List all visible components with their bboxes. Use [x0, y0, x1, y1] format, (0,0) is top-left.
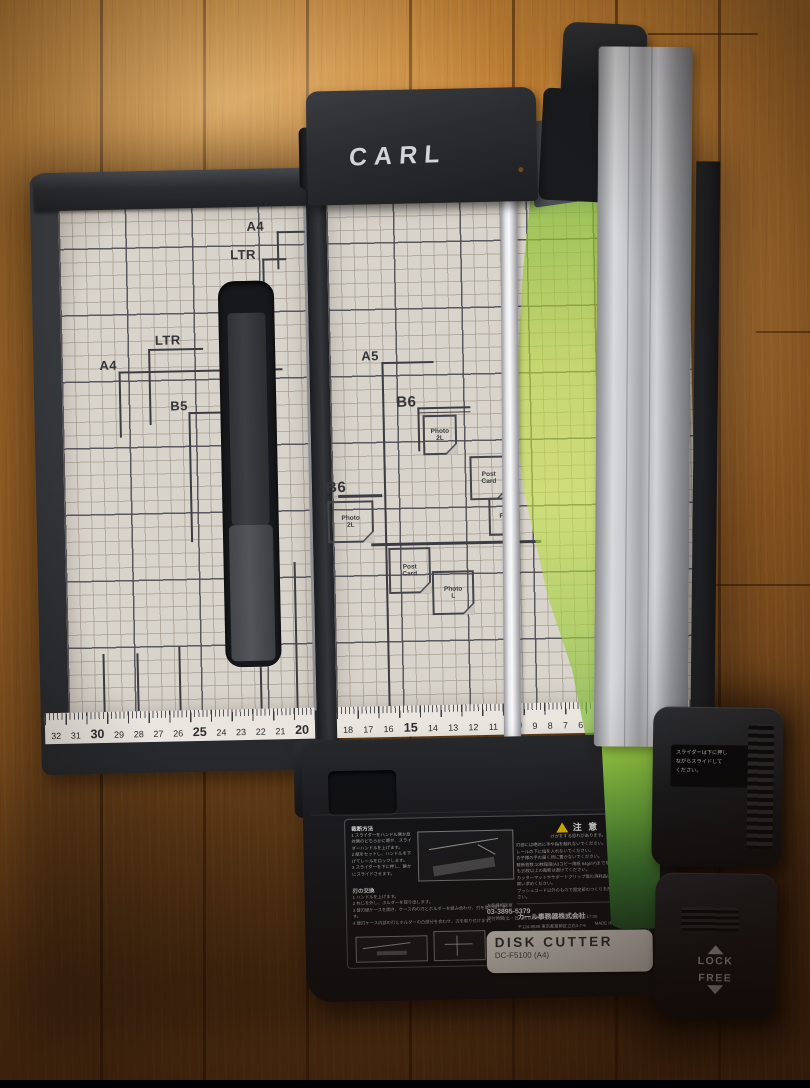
carry-handle-grip — [229, 524, 276, 661]
arrow-down-icon — [707, 985, 723, 994]
ruler-number: 14 — [428, 724, 438, 733]
post-card-label: Card — [402, 570, 417, 578]
warning-triangle-icon — [557, 822, 569, 832]
product-title: DISK CUTTER — [495, 934, 645, 951]
size-mark-a5: A5 — [361, 348, 379, 363]
size-mark-b5: B5 — [170, 398, 188, 413]
blade-diagram-1 — [355, 935, 428, 963]
lock-free-labels: LOCK FREE — [654, 944, 777, 995]
ruler-number: 20 — [295, 723, 309, 736]
fold-corner-icon — [446, 444, 457, 455]
list-item: 1 スライダーをハンドル側か反対側のどちらかに寄せ、スライダーハンドルを上げます… — [351, 832, 413, 853]
size-mark-b6-lower: B6 — [326, 479, 347, 496]
free-label: FREE — [698, 972, 732, 984]
ruler-number: 13 — [448, 724, 458, 733]
screw-dot — [518, 167, 523, 172]
cutter-rail — [594, 46, 693, 747]
ruler-number: 17 — [363, 725, 373, 734]
lock-label: LOCK — [698, 955, 734, 967]
post-card-label: Card — [481, 478, 496, 486]
base-recess — [328, 770, 397, 815]
size-mark-b6-upper: B6 — [396, 393, 417, 410]
size-mark-ltr-mid: LTR — [155, 332, 181, 348]
ruler-number: 16 — [384, 725, 394, 734]
clamp-housing: CARL — [306, 87, 538, 206]
ruler-number: 9 — [532, 722, 537, 731]
slider-caution-line: ください。 — [676, 766, 754, 776]
fold-corner-icon — [363, 531, 374, 542]
ruler-number: 8 — [548, 722, 553, 731]
ruler-number: 31 — [71, 732, 81, 741]
arrow-up-icon — [708, 945, 724, 954]
photo-2l-box-upper: Photo 2L — [423, 415, 458, 456]
ruler-number: 32 — [51, 732, 61, 741]
ruler-number: 21 — [275, 727, 285, 736]
photo-2l-box-lower: Photo 2L — [327, 500, 374, 543]
cut-method-steps: 1 スライダーをハンドル側か反対側のどちらかに寄せ、スライダーハンドルを上げます… — [351, 832, 414, 878]
lock-knob-ribs — [681, 907, 739, 932]
ruler-number: 22 — [256, 728, 266, 737]
slider-grip-ribs — [747, 724, 775, 850]
photo-2l-label: 2L — [436, 435, 444, 443]
size-mark-ltr-top: LTR — [230, 247, 256, 263]
disk-slider[interactable]: スライダーは下に押し ながらスライドして ください。 — [651, 706, 783, 868]
right-frame-edge — [690, 161, 720, 738]
photo-l-box: Photo L — [432, 570, 475, 615]
ruler-number: 6 — [578, 721, 583, 730]
ruler-number: 30 — [90, 728, 104, 741]
wing-ruler: 32313029282726252423222120 — [45, 708, 316, 745]
fold-corner-icon — [420, 582, 431, 593]
post-card-box-lower: Post Card — [388, 547, 431, 594]
warning-title: 注 意 — [573, 820, 600, 834]
product-label: DISK CUTTER DC-F5100 (A4) — [487, 929, 653, 973]
ruler-number: 27 — [153, 730, 163, 739]
photo-2l-label: 2L — [347, 522, 355, 530]
ruler-number: 7 — [563, 721, 568, 730]
ruler-number: 15 — [404, 721, 418, 734]
fold-corner-icon — [463, 603, 474, 614]
lock-knob[interactable]: LOCK FREE — [654, 872, 778, 1020]
ruler-number: 25 — [193, 725, 207, 738]
ruler-number: 28 — [134, 730, 144, 739]
photo-l-label: L — [451, 593, 455, 601]
ruler-number: 29 — [114, 731, 124, 740]
ruler-number: 12 — [468, 723, 478, 732]
ruler-number: 18 — [343, 726, 353, 735]
list-item: 3 スライダーを下に押し、静かにスライドさせます。 — [352, 864, 414, 878]
ruler-number: 11 — [489, 723, 499, 732]
size-mark-a4-mid: A4 — [99, 358, 117, 373]
slider-caution-label: スライダーは下に押し ながらスライドして ください。 — [670, 745, 759, 788]
size-mark-a4-top: A4 — [246, 219, 264, 234]
cutting-diagram — [417, 829, 514, 881]
disk-cutter-device: A4 LTR LTR A4 B5 32313029282726252423222… — [0, 0, 810, 1088]
carry-handle-bar — [227, 313, 269, 526]
carl-logo: CARL — [348, 140, 447, 173]
ruler-number: 24 — [216, 728, 226, 737]
ruler-number: 23 — [236, 728, 246, 737]
product-model: DC-F5100 (A4) — [495, 950, 645, 961]
blade-diagram-2 — [433, 930, 486, 961]
ruler-number: 26 — [173, 729, 183, 738]
